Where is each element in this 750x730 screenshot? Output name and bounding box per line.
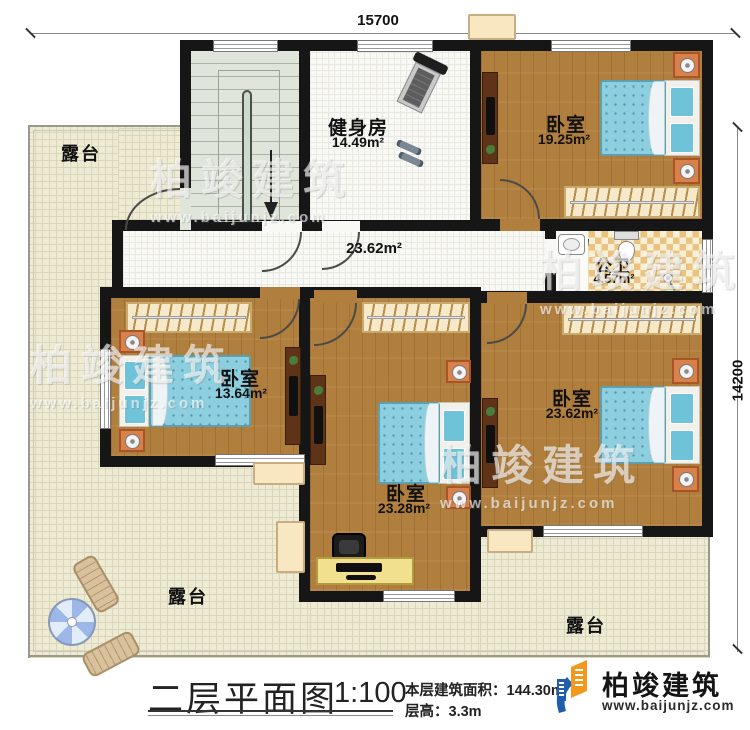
pillow bbox=[443, 410, 465, 442]
monitor-icon bbox=[314, 406, 323, 444]
floor-height-text: 层高：3.3m bbox=[405, 700, 482, 721]
pillow bbox=[124, 361, 146, 390]
door-opening bbox=[487, 292, 527, 304]
nightstand bbox=[673, 158, 700, 184]
monitor-icon bbox=[486, 425, 495, 463]
down-arrow-icon bbox=[264, 202, 278, 218]
nightstand bbox=[119, 429, 145, 452]
brand-logo-icon bbox=[551, 657, 597, 721]
staircase-railing bbox=[242, 90, 252, 222]
terrace-bottom-middle bbox=[310, 600, 480, 658]
terrace-edge bbox=[28, 125, 30, 658]
desk bbox=[482, 72, 498, 164]
door-opening bbox=[500, 219, 540, 231]
wardrobe bbox=[564, 186, 700, 218]
door-opening bbox=[322, 221, 360, 232]
desk bbox=[482, 398, 498, 488]
nightstand bbox=[446, 360, 471, 383]
lamp-icon bbox=[452, 491, 467, 506]
dumbbells bbox=[394, 140, 428, 170]
wardrobe-rail bbox=[367, 316, 465, 319]
plan-scale: 1:100 bbox=[334, 677, 407, 710]
room-area-gym: 14.49m² bbox=[332, 134, 384, 150]
right-dimension-label: 14200 bbox=[730, 353, 747, 409]
top-dimension-line bbox=[30, 33, 736, 34]
stair-direction-line bbox=[270, 150, 272, 202]
plant-icon bbox=[486, 145, 495, 154]
window bbox=[702, 239, 713, 293]
floor-area-text: 本层建筑面积：144.30m² bbox=[405, 679, 569, 700]
bed-sheet-fold bbox=[152, 356, 168, 426]
monitor-icon bbox=[486, 97, 495, 135]
terrace-edge-inner bbox=[33, 130, 34, 651]
toilet-tank bbox=[614, 231, 639, 240]
room-area-bedroom-top-right: 19.25m² bbox=[538, 131, 590, 147]
bed-sheet-fold bbox=[648, 387, 665, 463]
terrace-label-top-left: 露台 bbox=[61, 140, 101, 166]
brand-website: www.baijunjz.com bbox=[602, 698, 735, 713]
wardrobe-rail bbox=[570, 201, 694, 204]
window bbox=[100, 349, 111, 429]
tv-icon bbox=[336, 563, 382, 572]
media-player-icon bbox=[346, 575, 376, 580]
lamp-icon bbox=[680, 164, 695, 179]
patio-umbrella bbox=[48, 598, 96, 646]
room-gym bbox=[299, 40, 481, 232]
top-dimension-label: 15700 bbox=[357, 12, 399, 29]
room-area-bedroom-left: 13.64m² bbox=[215, 385, 267, 401]
monitor-icon bbox=[289, 376, 298, 416]
lamp-icon bbox=[452, 365, 467, 380]
nightstand bbox=[446, 486, 471, 509]
tv-desk bbox=[316, 557, 414, 585]
pillow bbox=[670, 87, 694, 117]
window bbox=[543, 525, 643, 537]
floor-plan: 15700 14200 bbox=[0, 0, 750, 730]
terrace-label-bottom-right: 露台 bbox=[566, 612, 606, 638]
room-area-bedroom-bottom-right: 23.62m² bbox=[546, 405, 598, 421]
planter-box bbox=[468, 14, 516, 40]
lamp-icon bbox=[679, 364, 694, 379]
pillow bbox=[670, 123, 694, 153]
wardrobe-rail bbox=[132, 316, 247, 319]
pillow bbox=[670, 393, 694, 424]
terrace-bottom-right bbox=[480, 535, 710, 658]
wardrobe bbox=[362, 302, 470, 333]
window bbox=[551, 40, 631, 52]
lamp-icon bbox=[680, 58, 695, 73]
planter-box bbox=[487, 529, 533, 553]
room-area-bathroom: 4.57m² bbox=[593, 271, 634, 286]
terrace-edge bbox=[708, 535, 710, 657]
window bbox=[213, 40, 278, 52]
desk bbox=[285, 347, 301, 445]
wardrobe bbox=[562, 304, 702, 335]
lamp-icon bbox=[125, 434, 140, 449]
lamp-icon bbox=[679, 472, 694, 487]
wardrobe-rail bbox=[568, 318, 696, 321]
desk bbox=[310, 375, 326, 465]
plant-icon bbox=[289, 356, 298, 365]
terrace-label-bottom-left: 露台 bbox=[168, 583, 208, 609]
room-area-bedroom-middle: 23.28m² bbox=[378, 500, 430, 516]
bed-sheet-fold bbox=[424, 403, 439, 483]
door-opening bbox=[180, 188, 191, 230]
door-opening bbox=[262, 221, 302, 232]
terrace-edge-inner bbox=[33, 130, 180, 131]
door-opening bbox=[314, 290, 357, 303]
bed-headboard bbox=[119, 355, 149, 427]
nightstand bbox=[119, 330, 145, 353]
nightstand bbox=[672, 466, 699, 492]
pillow bbox=[443, 448, 465, 480]
terrace-edge bbox=[28, 125, 180, 127]
bed-headboard bbox=[438, 402, 470, 484]
title-underline bbox=[148, 710, 393, 716]
room-area-hallway: 23.62m² bbox=[346, 240, 402, 257]
bed-sheet-fold bbox=[648, 81, 665, 155]
lamp-icon bbox=[125, 335, 140, 350]
pillow bbox=[124, 395, 146, 424]
planter-box bbox=[253, 462, 305, 485]
sink-basin bbox=[563, 238, 580, 251]
nightstand bbox=[672, 358, 699, 384]
window bbox=[383, 590, 455, 602]
plant-icon bbox=[486, 407, 495, 416]
window bbox=[357, 40, 433, 52]
plant-icon bbox=[314, 386, 323, 395]
bed-headboard bbox=[664, 80, 700, 156]
planter-box bbox=[276, 521, 305, 573]
wardrobe bbox=[126, 302, 252, 333]
pillow bbox=[670, 430, 694, 461]
bed-headboard bbox=[664, 386, 700, 464]
nightstand bbox=[673, 52, 700, 78]
door-opening bbox=[260, 287, 300, 299]
